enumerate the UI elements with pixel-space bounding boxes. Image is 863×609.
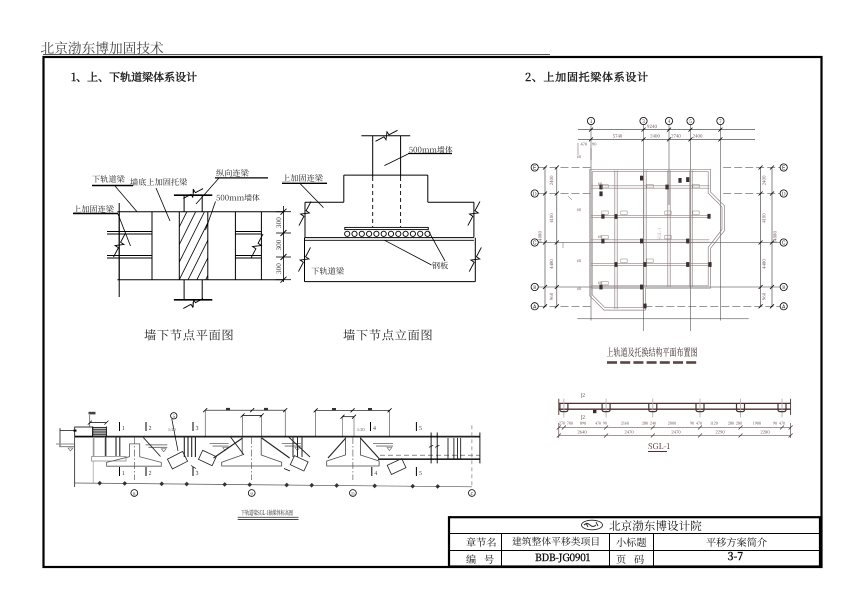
svg-text:下轨道梁: 下轨道梁: [311, 266, 345, 277]
svg-text:60: 60: [598, 281, 602, 286]
svg-text:D: D: [351, 491, 355, 497]
svg-text:300: 300: [274, 217, 283, 228]
svg-text:2400: 2400: [549, 175, 555, 185]
svg-text:1: 1: [122, 469, 125, 477]
svg-text:960: 960: [549, 292, 555, 300]
svg-text:上轨道及托换结构平面布置图: 上轨道及托换结构平面布置图: [607, 345, 698, 360]
svg-text:2470: 2470: [624, 430, 634, 436]
svg-text:|2: |2: [581, 414, 585, 421]
svg-text:D: D: [533, 191, 537, 198]
svg-text:960: 960: [762, 292, 768, 300]
svg-text:D: D: [782, 191, 786, 198]
svg-text:9240: 9240: [647, 124, 658, 130]
svg-text:60: 60: [598, 235, 602, 240]
svg-text:2290: 2290: [715, 430, 725, 436]
svg-text:280: 280: [736, 422, 742, 427]
svg-text:下轨道梁: 下轨道梁: [92, 174, 126, 185]
svg-text:5: 5: [419, 424, 422, 432]
svg-text:5: 5: [689, 118, 692, 125]
svg-text:1:20: 1:20: [357, 427, 365, 433]
svg-text:下轨道梁SGL-1轴梁体标高图: 下轨道梁SGL-1轴梁体标高图: [241, 508, 293, 517]
svg-text:5: 5: [419, 469, 422, 477]
svg-text:1: 1: [122, 424, 125, 432]
svg-text:470: 470: [696, 422, 702, 427]
svg-text:4100: 4100: [762, 213, 768, 223]
svg-text:1:20: 1:20: [168, 427, 176, 433]
svg-text:300: 300: [274, 239, 283, 250]
svg-text:90: 90: [773, 422, 777, 427]
svg-text:3: 3: [196, 469, 199, 477]
svg-text:280: 280: [642, 422, 648, 427]
svg-text:SGL-1: SGL-1: [657, 228, 663, 240]
svg-text:2740: 2740: [671, 134, 681, 140]
svg-text:5740: 5740: [613, 134, 623, 140]
svg-text:60: 60: [577, 287, 581, 292]
svg-text:270: 270: [559, 422, 565, 427]
svg-text:4480: 4480: [549, 259, 555, 269]
svg-text:60: 60: [577, 208, 581, 213]
svg-text:墙下节点立面图: 墙下节点立面图: [343, 326, 433, 344]
svg-text:4100: 4100: [549, 213, 555, 223]
svg-text:3: 3: [642, 118, 645, 125]
svg-text:4: 4: [373, 424, 376, 432]
svg-text:|2: |2: [581, 392, 585, 399]
svg-text:墙底上加固托梁: 墙底上加固托梁: [130, 177, 188, 188]
svg-text:2: 2: [149, 469, 152, 477]
svg-text:240: 240: [650, 422, 656, 427]
svg-text:470: 470: [595, 422, 601, 427]
svg-text:上加固连梁: 上加固连梁: [282, 173, 324, 184]
svg-text:60: 60: [577, 155, 581, 160]
svg-text:2400: 2400: [650, 134, 660, 140]
svg-text:2160: 2160: [621, 422, 629, 427]
svg-text:1120: 1120: [710, 422, 718, 427]
svg-text:300: 300: [274, 263, 283, 274]
svg-text:2640: 2640: [577, 430, 587, 436]
svg-text:C: C: [533, 240, 537, 247]
svg-text:60: 60: [577, 259, 581, 264]
svg-text:90: 90: [690, 422, 694, 427]
svg-text:14080: 14080: [538, 231, 544, 243]
svg-text:90: 90: [592, 142, 597, 148]
svg-text:2: 2: [149, 424, 152, 432]
svg-text:60: 60: [598, 182, 602, 187]
svg-text:280: 280: [728, 422, 734, 427]
svg-text:470: 470: [581, 142, 588, 148]
svg-text:F: F: [471, 491, 474, 497]
svg-text:2000: 2000: [668, 422, 676, 427]
svg-text:4: 4: [374, 469, 377, 477]
svg-text:2280: 2280: [760, 430, 770, 436]
svg-text:C: C: [782, 240, 786, 247]
svg-text:700: 700: [567, 422, 573, 427]
svg-text:7: 7: [719, 118, 722, 125]
svg-text:2400: 2400: [762, 175, 768, 185]
svg-text:4480: 4480: [762, 259, 768, 269]
svg-text:钢板: 钢板: [432, 261, 448, 272]
svg-text:2470: 2470: [671, 430, 681, 436]
svg-text:500mm墙体: 500mm墙体: [216, 193, 260, 204]
svg-text:2400: 2400: [693, 134, 703, 140]
svg-text:3: 3: [196, 424, 199, 432]
svg-text:14080: 14080: [773, 231, 779, 243]
svg-text:90: 90: [603, 422, 607, 427]
svg-text:1900: 1900: [753, 422, 761, 427]
svg-text:4: 4: [668, 118, 671, 125]
svg-text:890: 890: [580, 422, 586, 427]
svg-text:墙下节点平面图: 墙下节点平面图: [144, 326, 234, 344]
svg-text:SGL-1: SGL-1: [648, 441, 670, 452]
